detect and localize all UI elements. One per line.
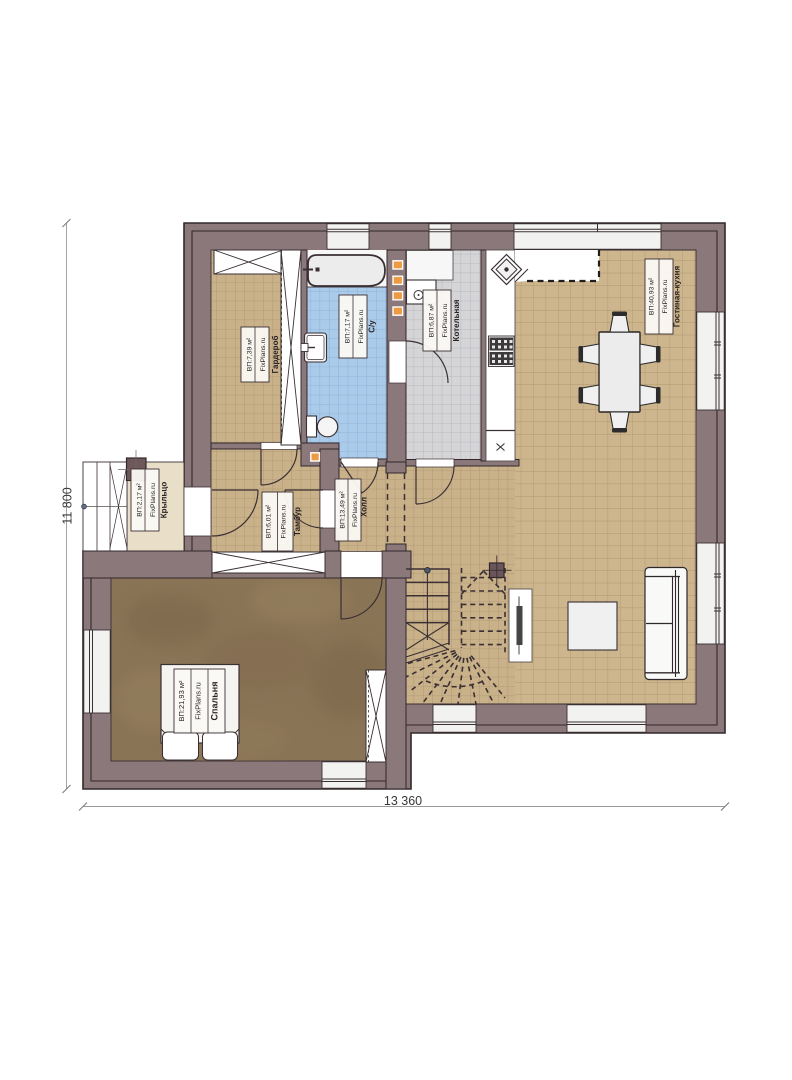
svg-text:ВП:7,17 м²: ВП:7,17 м²: [345, 309, 352, 343]
svg-text:ВП:6,01 м²: ВП:6,01 м²: [266, 504, 273, 538]
svg-text:Тамбур: Тамбур: [293, 507, 302, 536]
svg-text:Холл: Холл: [360, 497, 369, 517]
svg-text:С/у: С/у: [368, 320, 377, 333]
svg-text:FixPlans.ru: FixPlans.ru: [194, 682, 203, 720]
svg-text:ВП:6,87 м²: ВП:6,87 м²: [429, 303, 436, 337]
svg-text:ВП:21,93 м²: ВП:21,93 м²: [177, 680, 186, 721]
svg-text:ВП:7,39 м²: ВП:7,39 м²: [247, 337, 254, 371]
svg-text:FixPlans.ru: FixPlans.ru: [442, 303, 449, 337]
svg-text:FixPlans.ru: FixPlans.ru: [358, 309, 365, 343]
svg-text:ВП:2,17 м²: ВП:2,17 м²: [137, 483, 144, 517]
svg-text:FixPlans.ru: FixPlans.ru: [662, 279, 669, 313]
svg-text:Котельная: Котельная: [452, 299, 461, 341]
svg-text:Гостиная-кухня: Гостиная-кухня: [673, 266, 682, 328]
svg-text:ВП:40,93 м²: ВП:40,93 м²: [649, 277, 656, 315]
svg-text:Спальня: Спальня: [210, 682, 220, 721]
svg-text:Крыльцо: Крыльцо: [160, 482, 169, 519]
svg-text:Гардероб: Гардероб: [271, 336, 280, 374]
svg-text:13 360: 13 360: [384, 794, 422, 808]
svg-text:FixPlans.ru: FixPlans.ru: [260, 337, 267, 371]
svg-text:FixPlans.ru: FixPlans.ru: [352, 493, 359, 527]
svg-text:ВП:13,49 м²: ВП:13,49 м²: [340, 491, 347, 529]
svg-text:FixPlans.ru: FixPlans.ru: [281, 504, 288, 538]
svg-text:11 800: 11 800: [61, 487, 75, 524]
svg-text:FixPlans.ru: FixPlans.ru: [150, 483, 157, 517]
